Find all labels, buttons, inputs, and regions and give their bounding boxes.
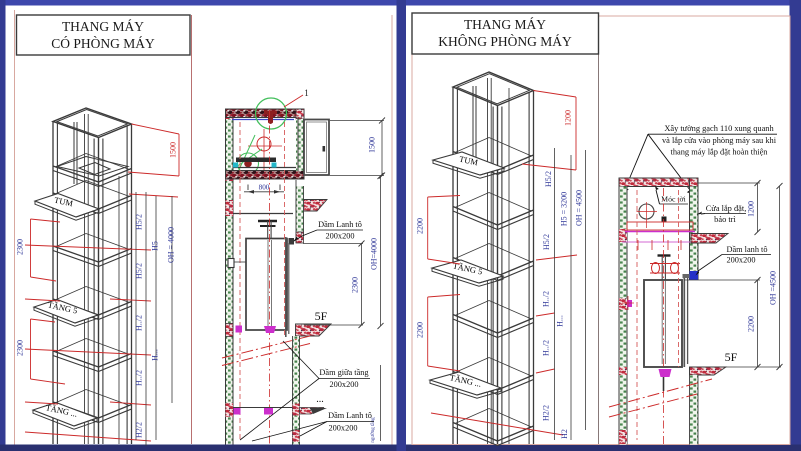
svg-text:1200: 1200 bbox=[747, 201, 756, 217]
svg-text:5F: 5F bbox=[315, 309, 328, 323]
svg-text:H5/2: H5/2 bbox=[544, 171, 553, 187]
svg-text:H...: H... bbox=[556, 315, 565, 327]
svg-text:...: ... bbox=[316, 394, 324, 405]
svg-text:THANG MÁY: THANG MÁY bbox=[62, 19, 144, 34]
svg-text:OH = 4000: OH = 4000 bbox=[167, 227, 176, 263]
svg-text:OH =4500: OH =4500 bbox=[769, 271, 778, 305]
svg-text:1500: 1500 bbox=[368, 137, 377, 153]
svg-text:thang máy lắp đặt hoàn thiện: thang máy lắp đặt hoàn thiện bbox=[671, 148, 769, 157]
svg-text:H5/2: H5/2 bbox=[542, 234, 551, 250]
svg-text:1: 1 bbox=[304, 88, 309, 98]
svg-text:KHÔNG PHÒNG MÁY: KHÔNG PHÒNG MÁY bbox=[438, 34, 572, 49]
svg-text:Cửa lắp đặt,: Cửa lắp đặt, bbox=[706, 204, 747, 213]
svg-text:200x200: 200x200 bbox=[328, 424, 357, 433]
svg-text:200x200: 200x200 bbox=[726, 256, 755, 265]
svg-text:Xây tường gạch 110 xung quanh: Xây tường gạch 110 xung quanh bbox=[664, 124, 774, 133]
svg-text:2200: 2200 bbox=[747, 316, 756, 332]
svg-text:2300: 2300 bbox=[16, 340, 25, 356]
svg-text:1500: 1500 bbox=[169, 142, 178, 158]
svg-text:Dầm lanh tô: Dầm lanh tô bbox=[726, 245, 767, 254]
svg-text:OH = 4500: OH = 4500 bbox=[575, 190, 584, 226]
svg-text:1200: 1200 bbox=[564, 110, 573, 126]
svg-text:H...: H... bbox=[151, 349, 160, 361]
svg-text:H../2: H../2 bbox=[542, 340, 551, 356]
svg-text:5F: 5F bbox=[725, 350, 738, 364]
svg-text:2300: 2300 bbox=[16, 239, 25, 255]
svg-text:800: 800 bbox=[259, 184, 270, 192]
svg-text:H2/2: H2/2 bbox=[135, 422, 144, 438]
svg-text:200x200: 200x200 bbox=[325, 232, 354, 241]
svg-text:Móc tời: Móc tời bbox=[661, 195, 687, 204]
svg-text:2300: 2300 bbox=[351, 277, 360, 293]
svg-text:H5: H5 bbox=[151, 241, 160, 251]
svg-text:bảo trì: bảo trì bbox=[714, 215, 736, 224]
svg-text:2200: 2200 bbox=[416, 218, 425, 234]
svg-text:H../2: H../2 bbox=[542, 291, 551, 307]
svg-text:OH=4000: OH=4000 bbox=[370, 238, 379, 270]
svg-text:H../2: H../2 bbox=[135, 315, 144, 331]
svg-text:và lắp cửa vào phòng máy sau k: và lắp cửa vào phòng máy sau khi bbox=[662, 136, 777, 145]
svg-text:H2/2: H2/2 bbox=[542, 405, 551, 421]
svg-text:Dầm Lanh tô: Dầm Lanh tô bbox=[318, 220, 362, 229]
svg-text:200x200: 200x200 bbox=[329, 380, 358, 389]
svg-text:H2: H2 bbox=[560, 429, 569, 439]
svg-text:H../2: H../2 bbox=[135, 370, 144, 386]
svg-text:Dầm Lanh tô: Dầm Lanh tô bbox=[328, 411, 372, 420]
svg-text:H5/2: H5/2 bbox=[135, 263, 144, 279]
svg-text:CÓ PHÒNG MÁY: CÓ PHÒNG MÁY bbox=[51, 36, 155, 51]
svg-text:THANG MÁY: THANG MÁY bbox=[464, 17, 546, 32]
svg-text:H5/2: H5/2 bbox=[135, 214, 144, 230]
svg-text:2200: 2200 bbox=[416, 322, 425, 338]
svg-text:H5 = 3200: H5 = 3200 bbox=[560, 192, 569, 226]
svg-text:Dầm giữa tầng: Dầm giữa tầng bbox=[319, 368, 368, 377]
svg-text:ngưỡng tầng: ngưỡng tầng bbox=[371, 417, 376, 443]
